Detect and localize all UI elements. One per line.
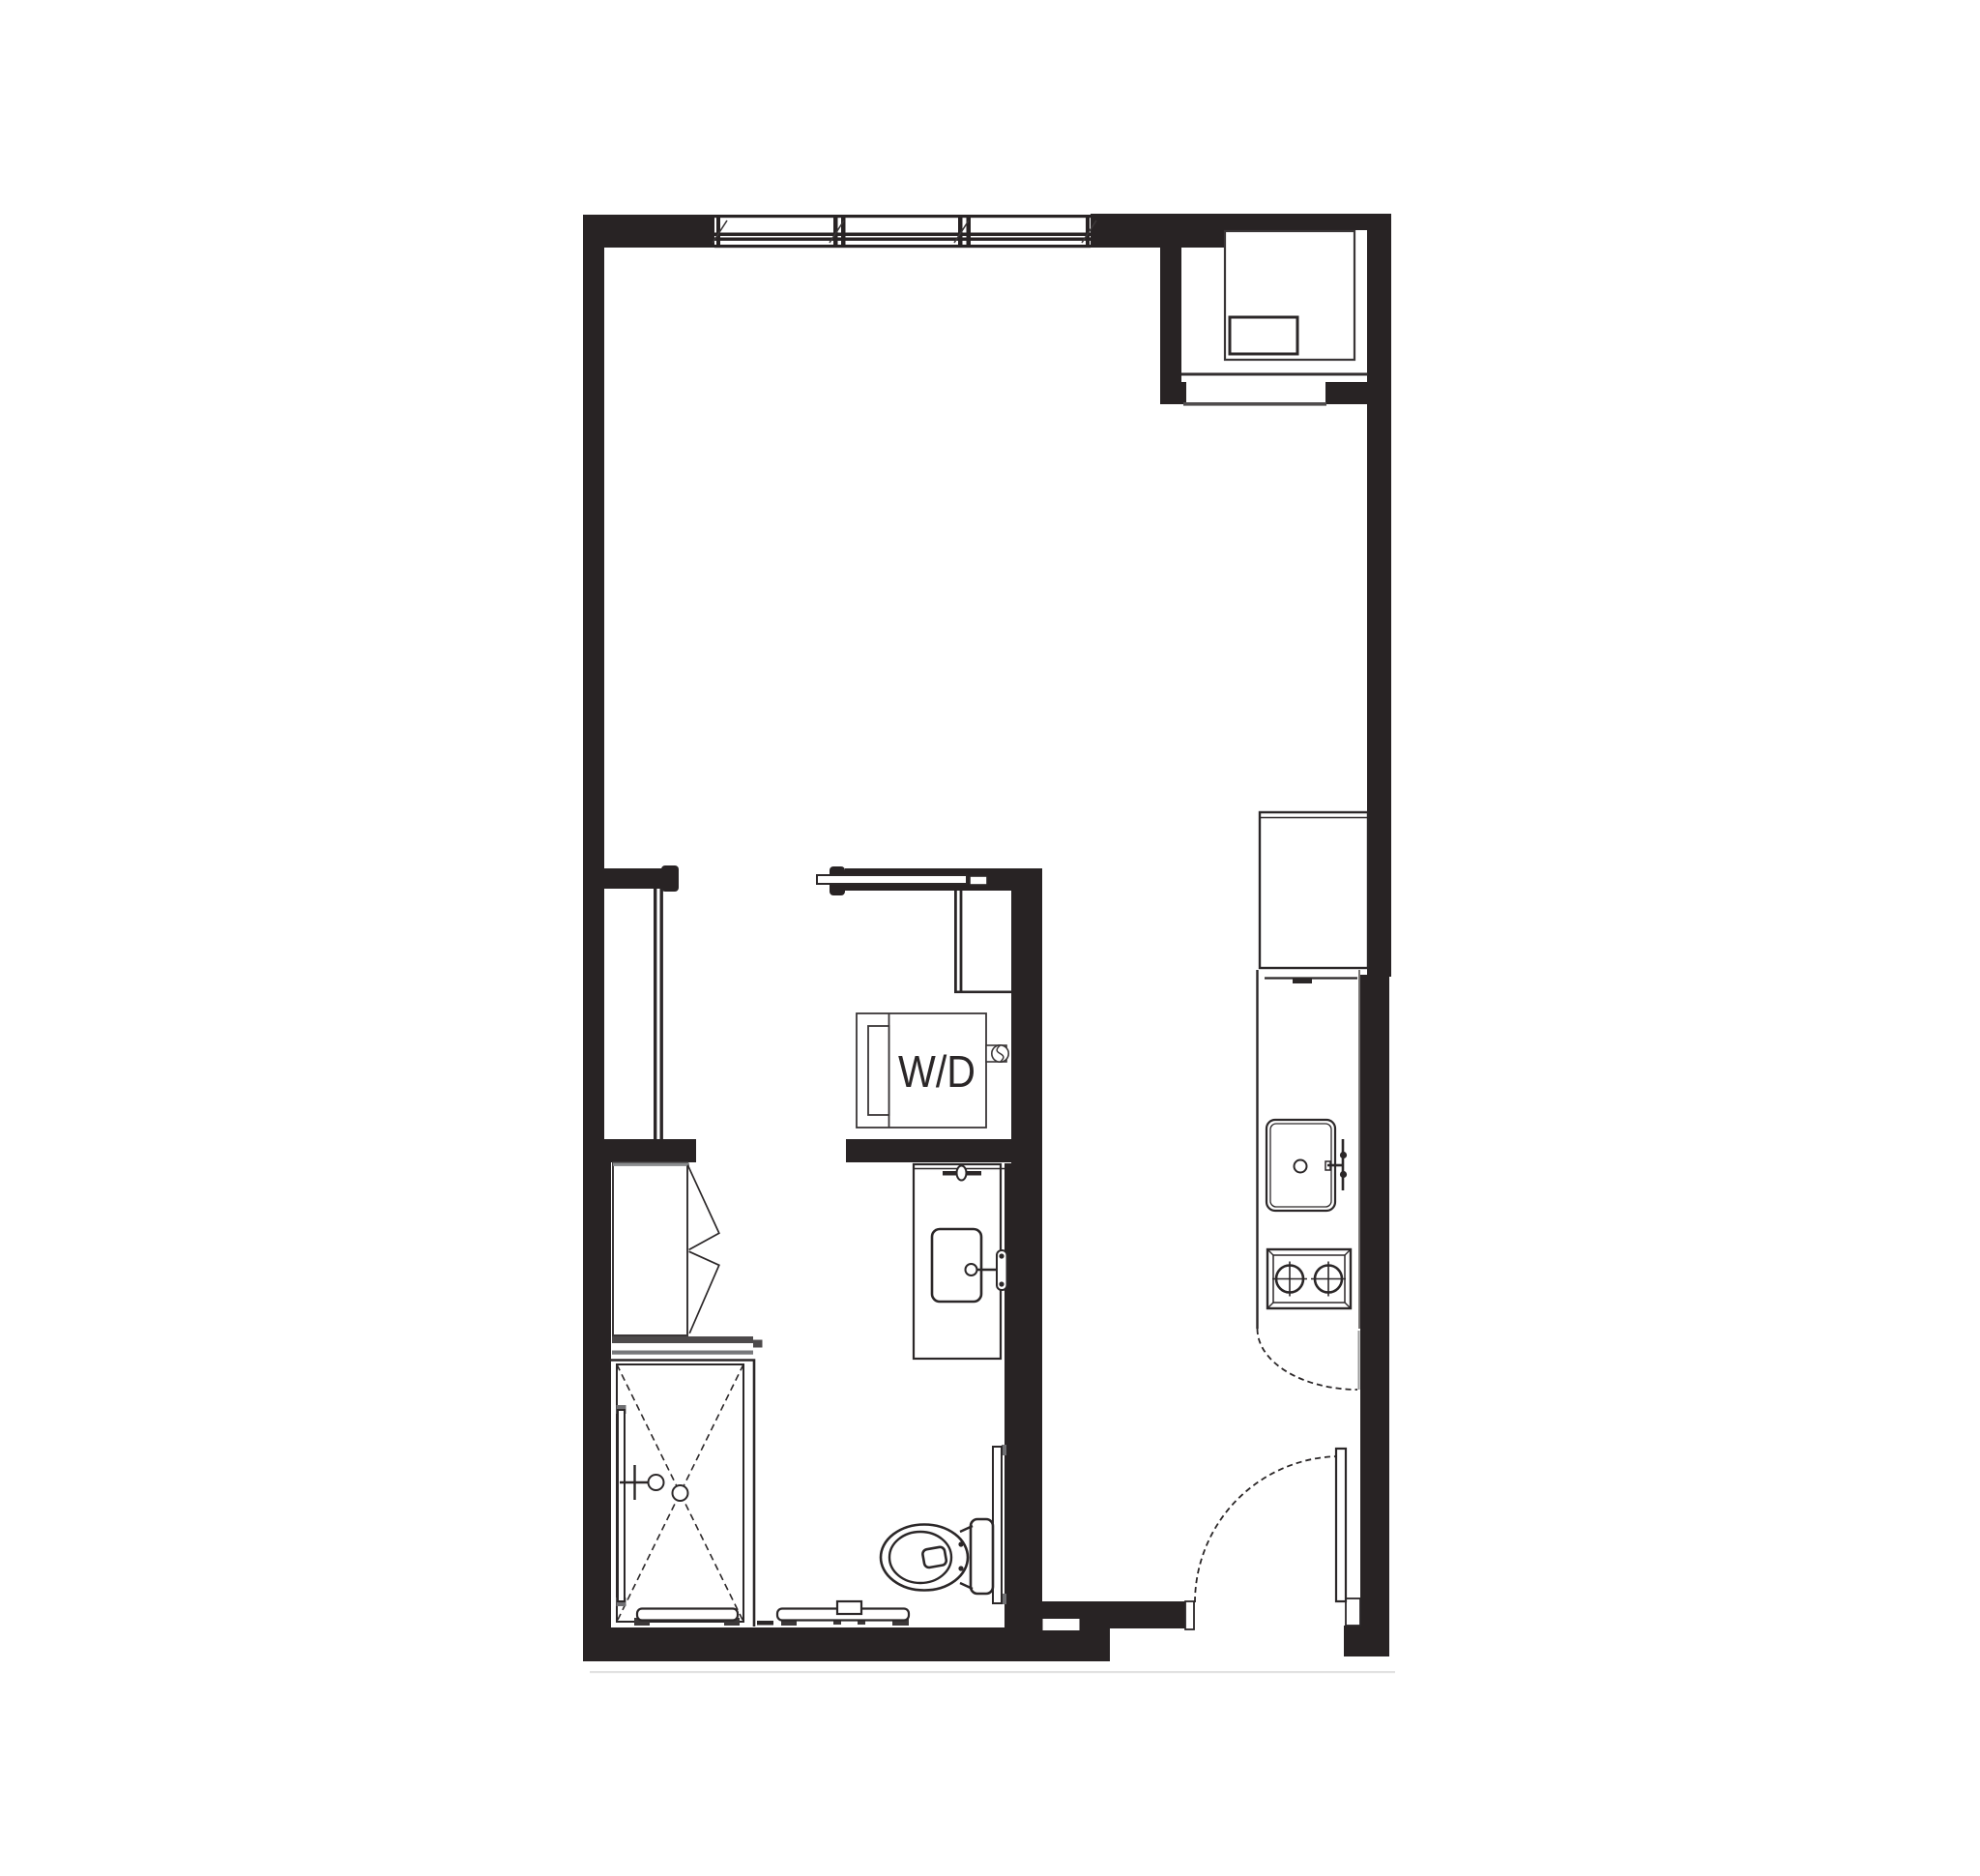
svg-text:W/D: W/D — [898, 1046, 975, 1097]
